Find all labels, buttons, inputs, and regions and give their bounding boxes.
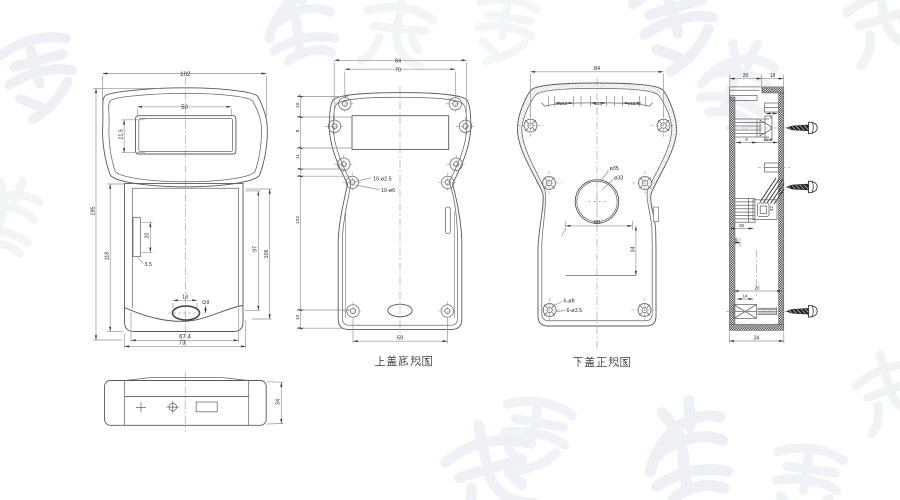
svg-text:106: 106 xyxy=(264,250,270,259)
svg-text:20: 20 xyxy=(145,233,151,239)
svg-text:84: 84 xyxy=(395,59,401,65)
svg-text:195: 195 xyxy=(91,206,97,215)
svg-text:ø12: ø12 xyxy=(628,101,636,106)
svg-text:73: 73 xyxy=(179,341,186,347)
svg-text:97: 97 xyxy=(253,246,259,252)
svg-text:42: 42 xyxy=(769,206,774,212)
svg-text:ø35: ø35 xyxy=(610,166,619,172)
svg-text:59: 59 xyxy=(397,336,403,342)
svg-text:30: 30 xyxy=(739,223,745,228)
svg-text:20: 20 xyxy=(743,73,749,79)
svg-text:14: 14 xyxy=(742,293,748,298)
svg-text:70: 70 xyxy=(395,68,401,74)
svg-text:10-ø6: 10-ø6 xyxy=(381,188,395,194)
svg-text:10: 10 xyxy=(295,315,301,321)
svg-text:ø12: ø12 xyxy=(560,101,568,106)
svg-text:12.5: 12.5 xyxy=(764,137,773,142)
svg-text:34: 34 xyxy=(630,247,636,253)
svg-text:34: 34 xyxy=(276,399,282,405)
svg-text:118: 118 xyxy=(105,252,111,261)
svg-text:9: 9 xyxy=(207,300,210,306)
svg-text:20: 20 xyxy=(754,285,760,290)
svg-text:9: 9 xyxy=(745,137,748,142)
svg-text:11: 11 xyxy=(295,154,301,159)
svg-text:5: 5 xyxy=(735,237,738,242)
svg-text:21.5: 21.5 xyxy=(119,129,125,140)
svg-text:50: 50 xyxy=(181,105,188,111)
svg-text:102: 102 xyxy=(295,216,301,224)
svg-text:ø10: ø10 xyxy=(594,101,602,106)
svg-text:102: 102 xyxy=(180,71,191,78)
svg-text:3.5: 3.5 xyxy=(145,262,153,268)
svg-text:8: 8 xyxy=(295,129,301,132)
svg-text:67.4: 67.4 xyxy=(179,335,191,341)
svg-text:13: 13 xyxy=(182,295,188,301)
svg-text:60: 60 xyxy=(594,220,600,226)
svg-text:6-ø3.5: 6-ø3.5 xyxy=(567,308,583,314)
svg-text:6-ø8: 6-ø8 xyxy=(564,299,575,305)
svg-text:34: 34 xyxy=(754,335,760,341)
svg-text:10: 10 xyxy=(295,102,301,108)
svg-text:84: 84 xyxy=(594,66,600,72)
svg-text:10-ø2.5: 10-ø2.5 xyxy=(373,176,392,182)
svg-text:18: 18 xyxy=(770,73,776,79)
svg-text:ø33: ø33 xyxy=(614,176,623,182)
